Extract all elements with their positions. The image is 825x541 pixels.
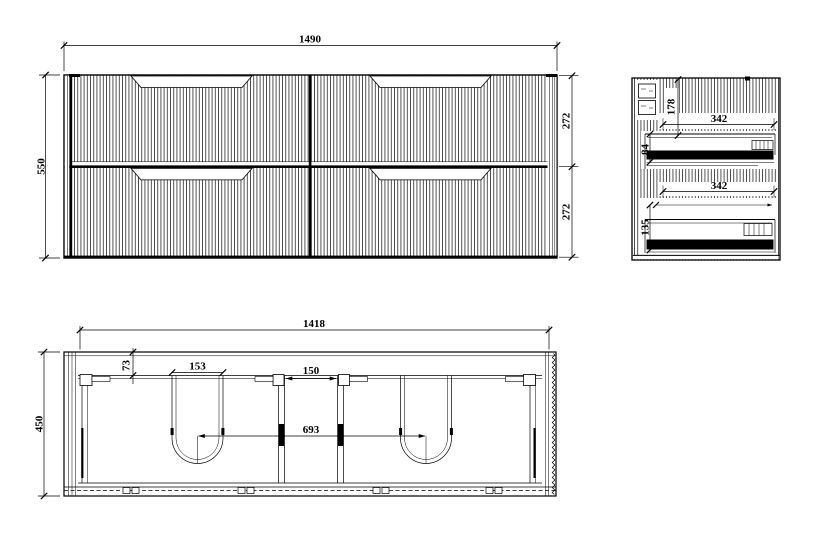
front-lower-drawer-label: 272 — [561, 203, 573, 220]
plan-drain-centres-label: 693 — [303, 424, 320, 436]
front-handle-recess-top-left — [131, 76, 252, 88]
front-centre-divider — [309, 75, 312, 258]
front-cabinet-body — [64, 74, 557, 258]
side-lower-slide-rail — [647, 240, 774, 250]
side-top-clearance-label: 178 — [666, 98, 678, 115]
side-lower-connector — [744, 224, 772, 236]
front-upper-drawer-label: 272 — [561, 112, 573, 129]
side-lower-depth-label: 342 — [711, 180, 728, 192]
side-lower-rail-label: 135 — [640, 219, 652, 236]
front-handle-recess-bottom-right — [370, 168, 491, 180]
plan-back-rail-label: 73 — [121, 360, 133, 372]
plan-depth-label: 450 — [34, 415, 46, 432]
front-height-label: 550 — [36, 158, 48, 175]
side-view: 178 342 84 342 — [632, 76, 780, 260]
plan-width-label: 1418 — [303, 318, 326, 330]
plan-cutout-width-label: 153 — [189, 361, 206, 373]
side-upper-depth-label: 342 — [711, 113, 728, 125]
side-upper-slide-rail — [647, 151, 774, 160]
front-handle-recess-bottom-left — [131, 168, 252, 180]
front-left-edge — [65, 76, 70, 258]
front-width-label: 1490 — [299, 34, 322, 46]
front-handle-recess-top-right — [370, 76, 491, 88]
vanity-drawing: 1490 550 272 272 — [0, 0, 825, 541]
front-right-edge — [548, 76, 557, 258]
side-upper-rail-label: 84 — [640, 144, 652, 156]
technical-drawing-canvas: 1490 550 272 272 — [0, 0, 825, 541]
plan-centre-gap-label: 150 — [303, 365, 320, 377]
